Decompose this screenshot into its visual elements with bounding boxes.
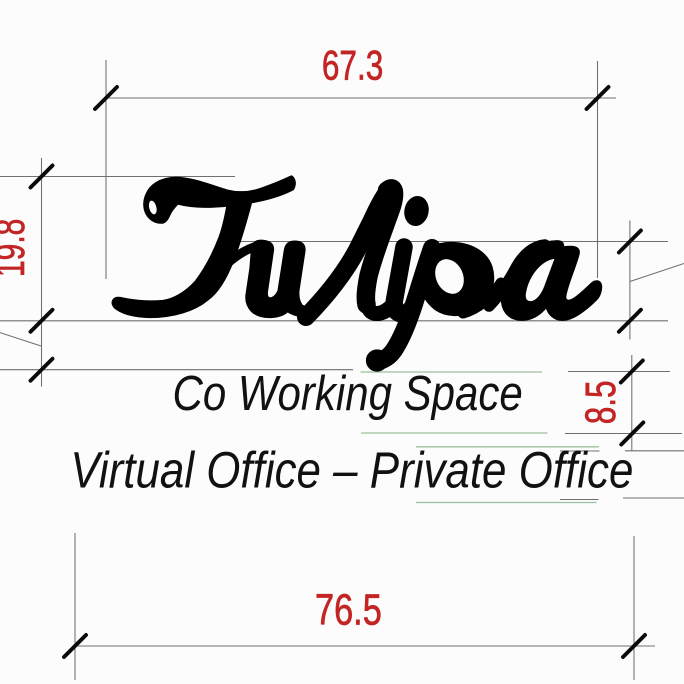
svg-text:67.3: 67.3 — [322, 41, 383, 88]
svg-text:8.5: 8.5 — [577, 380, 625, 424]
svg-text:76.5: 76.5 — [315, 587, 382, 635]
svg-text:Co Working Space: Co Working Space — [173, 366, 523, 421]
svg-text:19.8: 19.8 — [0, 219, 33, 277]
svg-text:Virtual Office – Private Offic: Virtual Office – Private Office — [70, 440, 633, 498]
